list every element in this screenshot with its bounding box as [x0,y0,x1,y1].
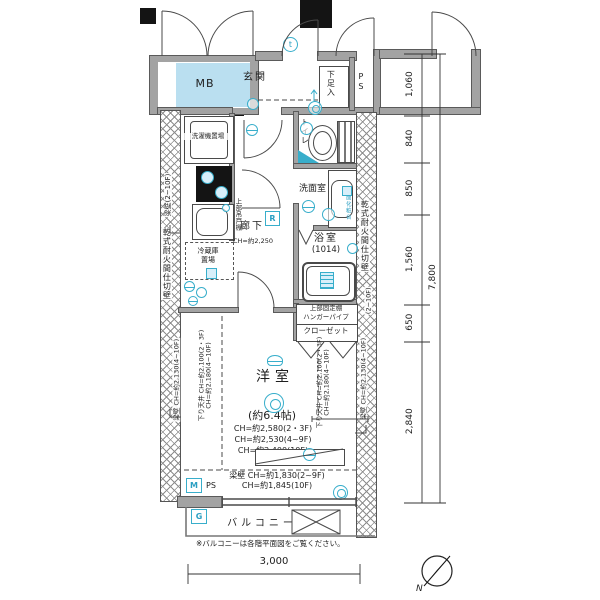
bracket-right-bottom [355,425,366,433]
closet-door-right [330,342,356,358]
fan-arrow [311,90,317,101]
neighbor2-door-arc [432,12,476,56]
bracket-left-top [170,225,181,233]
neighbor1-door-arc [336,18,374,56]
hall-door1-arc [244,120,282,158]
counter-diagonal [255,449,343,464]
mb-door-right-arc [208,11,253,56]
balcony-rail [186,507,375,536]
linework [0,0,600,600]
room-door-arc [238,272,274,308]
bath-folding-door [299,230,313,244]
bracket-left-bottom [170,409,181,417]
compass [422,556,452,586]
balcony-window [222,497,356,507]
mb-door-left-arc [162,11,207,56]
bracket-mid [312,416,368,422]
entrance-door-arc [282,20,318,56]
closet-door-left [298,342,324,358]
wash-door-arc [242,170,280,208]
compass-needle-edge [424,556,450,586]
floor-plan: MB 玄関 下足入 PS 洗濯機置場 上部吊戸棚 冷蔵庫 置場 廊下 CH=約2… [0,0,600,600]
